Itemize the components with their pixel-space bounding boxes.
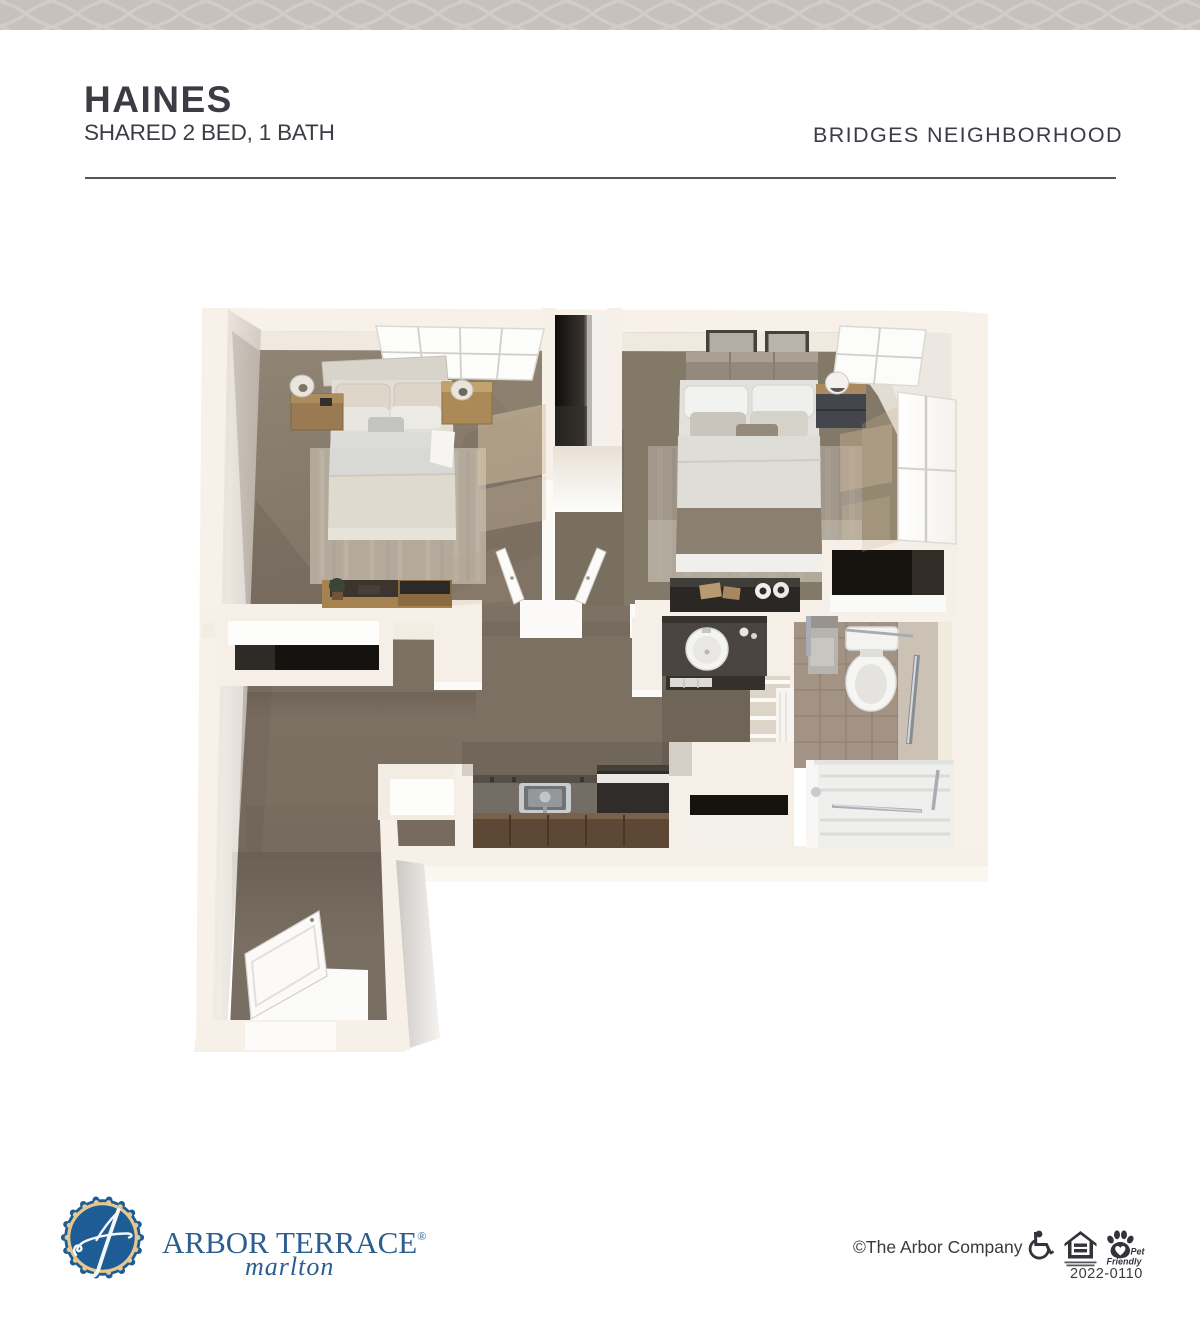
- svg-text:Friendly: Friendly: [1107, 1257, 1143, 1267]
- svg-text:Pet: Pet: [1131, 1247, 1146, 1257]
